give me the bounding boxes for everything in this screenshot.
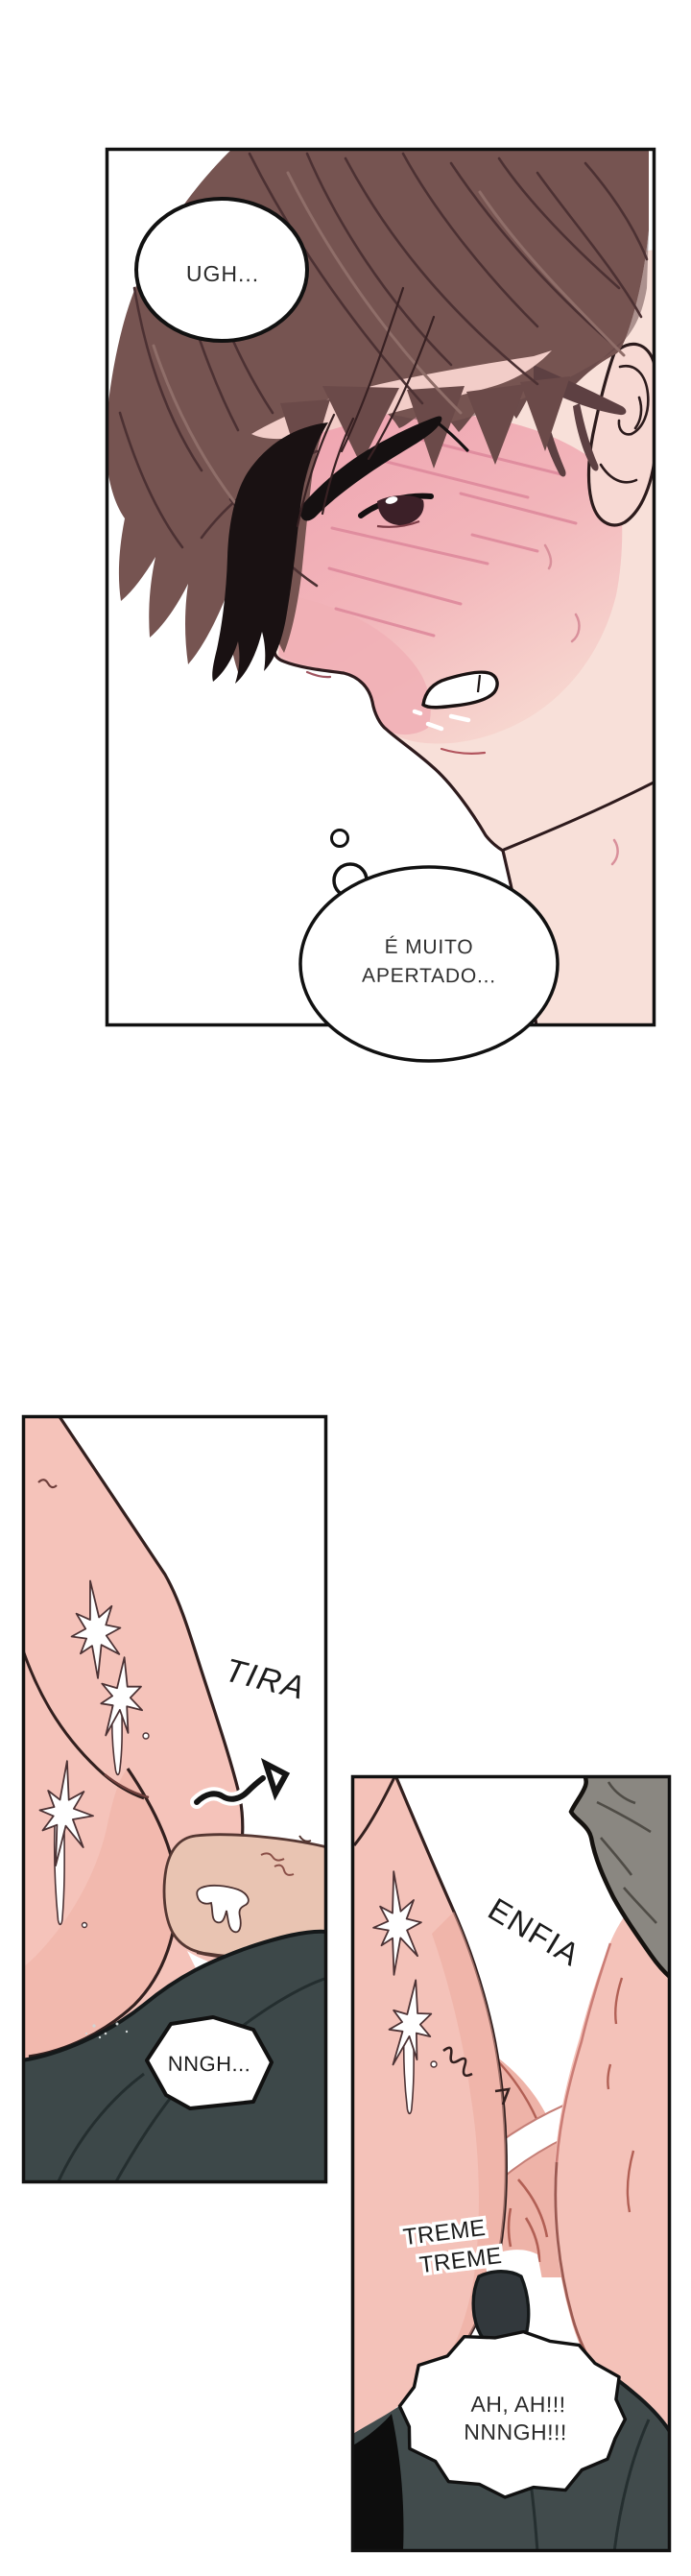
svg-text:É MUITO: É MUITO <box>385 936 474 958</box>
svg-text:NNGH...: NNGH... <box>168 2052 251 2076</box>
svg-text:UGH...: UGH... <box>186 261 259 286</box>
svg-text:APERTADO...: APERTADO... <box>362 965 496 988</box>
svg-text:AH, AH!!!: AH, AH!!! <box>470 2392 565 2418</box>
svg-text:NNNGH!!!: NNNGH!!! <box>464 2420 567 2445</box>
